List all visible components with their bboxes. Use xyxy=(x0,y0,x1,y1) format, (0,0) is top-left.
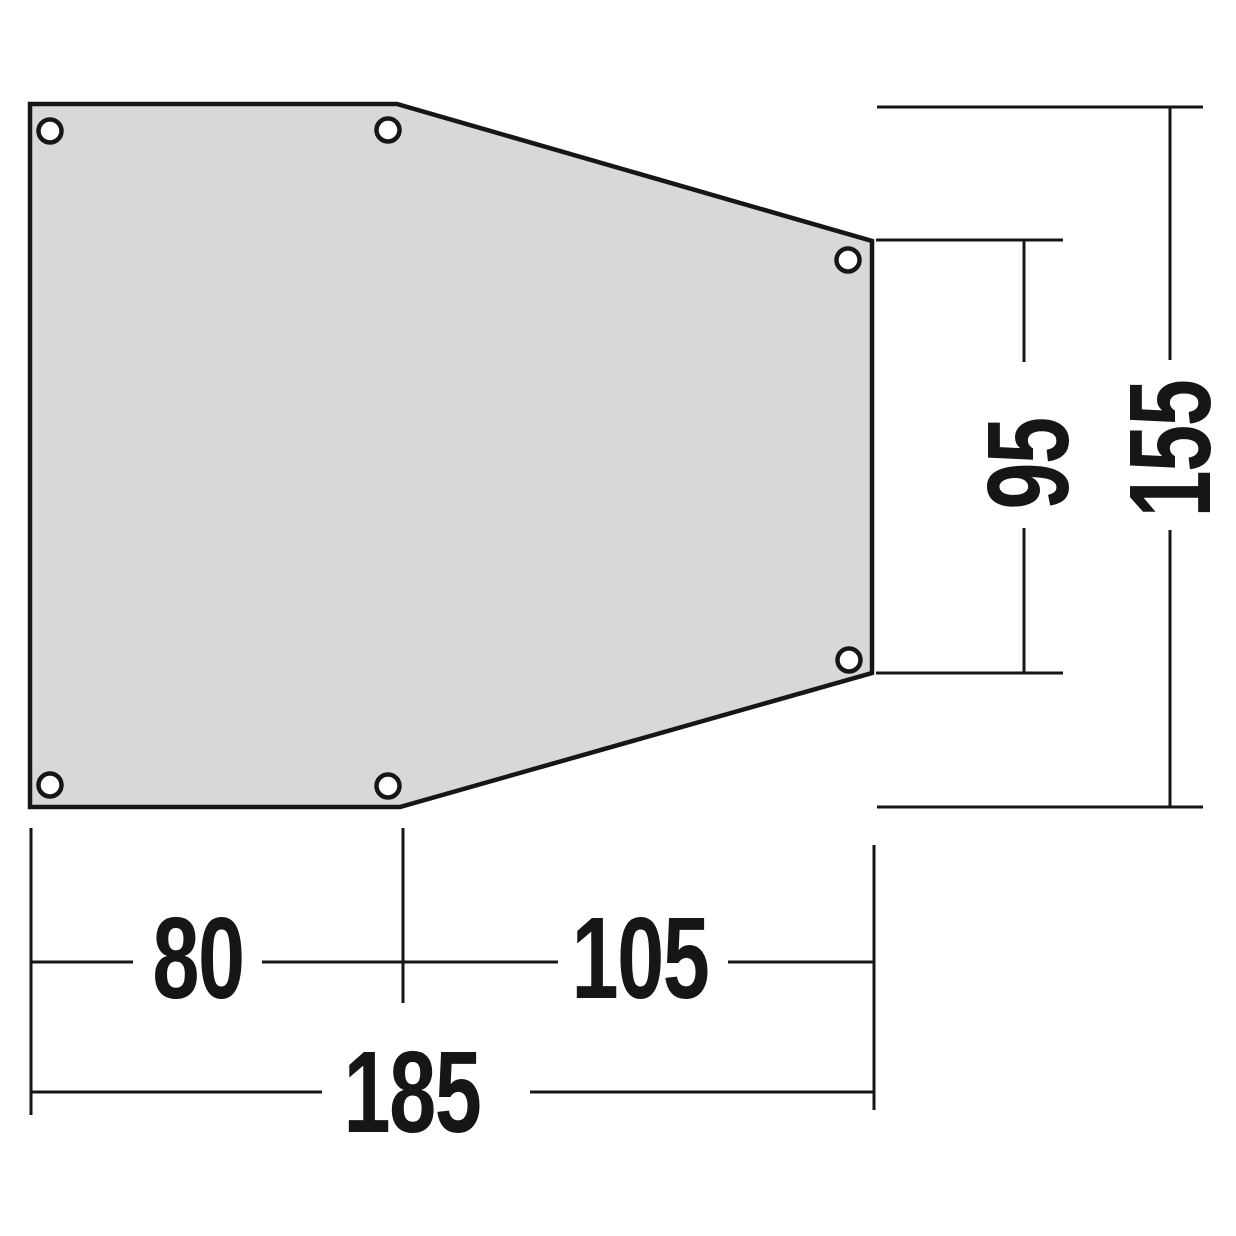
dim-label-bottom-total-width: 185 xyxy=(344,1027,481,1157)
grommet-icon xyxy=(39,120,62,143)
dim-label-right-inner-height: 95 xyxy=(963,418,1093,509)
grommet-icon xyxy=(39,774,62,797)
footprint-shape xyxy=(30,104,872,807)
grommet-icon xyxy=(377,119,400,142)
dim-label-bottom-left-width: 80 xyxy=(152,893,243,1023)
diagram-canvas: 80 105 185 95 155 xyxy=(0,0,1236,1236)
grommet-icon xyxy=(377,775,400,798)
dim-label-right-total-height: 155 xyxy=(1105,381,1235,518)
grommet-icon xyxy=(837,249,860,272)
dimension-drawing: 80 105 185 95 155 xyxy=(0,0,1236,1236)
grommet-icon xyxy=(838,649,861,672)
dim-label-bottom-right-width: 105 xyxy=(572,893,709,1023)
